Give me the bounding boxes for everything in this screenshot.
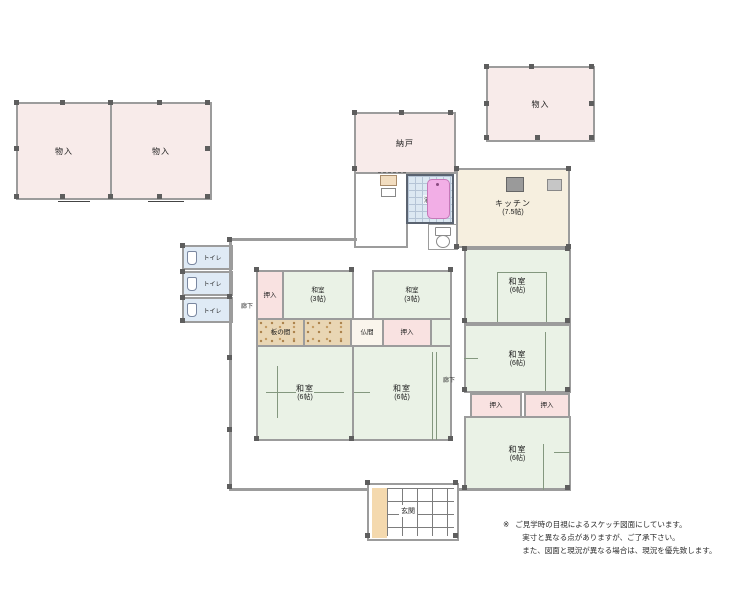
door-line [58,201,90,202]
wall-post [529,64,534,69]
room-label: 押入 [264,291,277,300]
wall-post [399,110,404,115]
room-label: 納戸 [396,139,414,148]
wall-post [14,100,19,105]
room-nando: 納戸 [354,112,456,174]
tatami-line [554,452,570,453]
room-tatami-3-left: 和室 (3帖) [282,270,354,320]
wall-post [565,318,570,323]
toilet-icon [187,303,197,317]
wall-post [227,237,232,242]
room-label: 押入 [490,401,503,410]
closet-east-2: 押入 [524,393,570,418]
tatami-line [543,444,544,490]
room-label: 玄関 [399,505,417,517]
wall-post [589,101,594,106]
room-tatami-e: 和室 (6帖) [464,324,571,393]
wall-post [566,166,571,171]
tatami-line [277,366,278,418]
note-line: また、図面と現況が異なる場合は、現況を優先致します。 [522,544,716,557]
wall-post [60,100,65,105]
room-label: 和室 (6帖) [296,384,314,402]
genkan-tile-floor [387,488,454,536]
room-label: 和室 (3帖) [404,286,420,304]
wall-post [462,246,467,251]
wall-post [589,64,594,69]
wall-post [205,194,210,199]
room-label: トイレ [203,306,221,315]
room-label: 物入 [152,147,170,156]
stove-icon [506,177,524,192]
note-marker: ※ [503,518,509,557]
floor-plan: 物入 物入 物入 納戸 浴室 キッチン (7.5帖) 和室 (6帖) [0,0,750,600]
room-label: 物入 [532,100,550,109]
hall-label-left: 廊下 [241,301,253,310]
room-label: 和室 (6帖) [393,384,411,402]
wall-post [227,355,232,360]
tatami-line [464,358,478,359]
tatami-line [432,352,433,440]
room-tatami-sw: 和室 (6帖) [256,345,354,441]
wall-post [454,166,459,171]
tatami-line [497,272,547,273]
toilet-icon [187,277,197,291]
wall-post [589,135,594,140]
note-line: ご見学時の目視によるスケッチ図面にしています。 [515,518,716,531]
wall-corridor-top [229,238,357,241]
room-label: トイレ [203,279,221,288]
room-label: 押入 [541,401,554,410]
room-genkan: 玄関 [367,483,459,541]
wall-post [227,294,232,299]
room-storage-left-b: 物入 [110,102,212,200]
wall-post [108,100,113,105]
wall-post [453,533,458,538]
wall-post [227,427,232,432]
bathtub [427,179,450,219]
washstand [380,175,397,186]
wall-post [108,194,113,199]
room-itanoma-a: 板の間 [256,318,305,347]
closet-northwest: 押入 [256,270,284,320]
wall-post [14,146,19,151]
toilet-bowl-icon [436,235,450,248]
room-label: 板の間 [271,328,291,337]
wall-post [180,318,185,323]
wall-post [535,135,540,140]
room-label: 和室 (6帖) [509,277,527,295]
faucet-icon [436,183,439,186]
wall-post [349,436,354,441]
sink-icon [547,179,562,191]
wall-post [157,194,162,199]
room-itanoma-b [303,318,352,347]
wall-post [565,387,570,392]
wall-post [484,135,489,140]
room-tatami-s: 和室 (6帖) [352,345,452,441]
tatami-line [497,272,498,322]
wall-south-a [229,488,369,491]
door-line [148,201,184,202]
wall-post [205,100,210,105]
closet-middle: 押入 [382,318,432,347]
wall-post [180,295,185,300]
room-tatami-se: 和室 (6帖) [464,416,571,491]
wall-post [205,146,210,151]
wall-post [565,485,570,490]
wall-post [14,194,19,199]
wall-post [365,533,370,538]
tatami-line [354,392,370,393]
wall-post [462,318,467,323]
hall-label-right: 廊下 [443,375,455,384]
room-storage-top-right: 物入 [486,66,595,142]
closet-east-1: 押入 [470,393,522,418]
wall-post [352,166,357,171]
wall-post [254,436,259,441]
wall-post [349,267,354,272]
room-label: 押入 [401,328,414,337]
disclaimer-note: ※ ご見学時の目視によるスケッチ図面にしています。 実寸と異なる点がありますが、… [503,518,743,557]
wall-post [180,269,185,274]
wall-post [484,64,489,69]
tatami-line [436,352,437,440]
tatami-line [545,332,546,391]
wall-post [462,387,467,392]
wall-post [453,480,458,485]
room-label: 仏間 [361,328,374,337]
wall-post [157,100,162,105]
wall-south-b [457,488,571,491]
room-label: トイレ [203,253,221,262]
wall-post [448,436,453,441]
wall-post [454,244,459,249]
toilet-icon [187,251,197,265]
wall-post [565,246,570,251]
wall-post [448,267,453,272]
room-storage-left-a: 物入 [16,102,112,200]
washing-machine [381,188,396,197]
wall-post [254,267,259,272]
room-butsuma: 仏間 [350,318,384,347]
room-label: キッチン (7.5帖) [495,199,531,217]
alcove-green [430,318,452,347]
wall-post [227,484,232,489]
room-tatami-ne: 和室 (6帖) [464,248,571,324]
room-label: 和室 (6帖) [509,445,527,463]
genkan-step [372,488,387,538]
wall-post [180,243,185,248]
wall-post [60,194,65,199]
note-line: 実寸と異なる点がありますが、ご了承下さい。 [522,531,716,544]
wall-west [229,238,232,491]
room-label: 物入 [55,147,73,156]
room-tatami-3-right: 和室 (3帖) [372,270,452,320]
wall-post [352,110,357,115]
opening-dashed [378,172,406,173]
wall-post [484,101,489,106]
wall-post [365,480,370,485]
room-label: 和室 (6帖) [509,350,527,368]
wall-post [462,485,467,490]
wall-post [448,110,453,115]
tatami-line [546,272,547,322]
room-label: 和室 (3帖) [310,286,326,304]
